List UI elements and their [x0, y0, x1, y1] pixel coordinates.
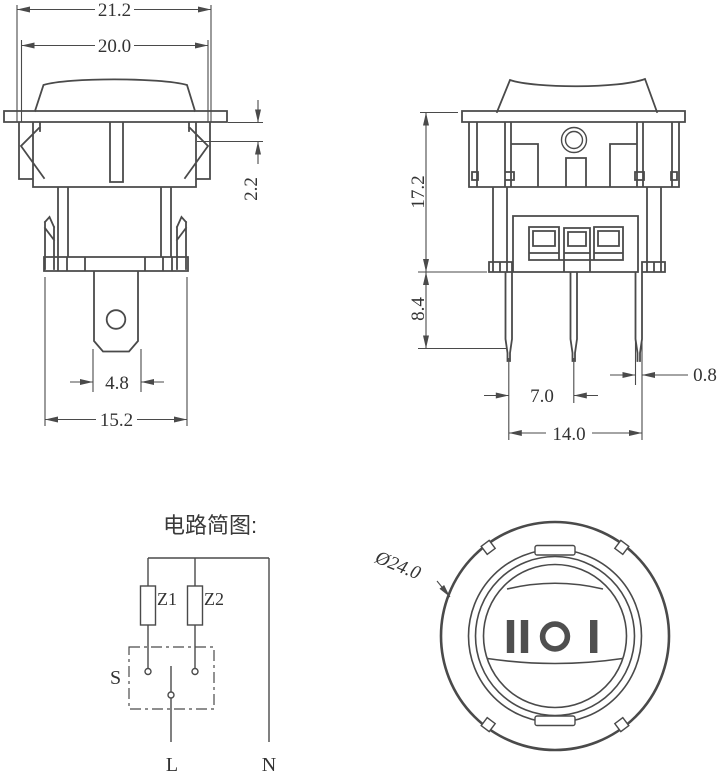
front-view-drawing: 21.2 20.0 2.2 4.8 15.2	[4, 0, 263, 431]
circuit-heading: 电路简图:	[163, 513, 257, 538]
top-alignment-tab	[535, 546, 575, 556]
marking-bar-II-2	[521, 620, 528, 653]
rim-snap-tabs	[481, 540, 629, 731]
label-n: N	[262, 754, 276, 773]
label-l: L	[166, 754, 178, 773]
bezel-ring-1	[469, 550, 642, 723]
dim-body-height: 17.2	[408, 175, 429, 208]
dim-width-inner: 20.0	[98, 36, 131, 57]
technical-drawing-page: 21.2 20.0 2.2 4.8 15.2 17.2 8.4 0.	[0, 0, 720, 773]
snap-tab-top-right	[615, 540, 629, 554]
dim-pin-pitch: 7.0	[530, 386, 554, 407]
resistor-z2	[188, 586, 203, 625]
circuit-wires	[148, 558, 269, 742]
contact-right	[192, 669, 198, 675]
dim-face-diameter: Ø24.0	[371, 547, 424, 585]
terminal-hole	[107, 310, 126, 329]
bezel-ring-3	[484, 565, 627, 708]
bottom-alignment-tab	[535, 716, 575, 726]
dim-terminal-width: 4.8	[105, 373, 129, 394]
side-view-drawing: 17.2 8.4 0.8 7.0 14.0	[408, 79, 717, 445]
snap-tab-top-left	[481, 540, 495, 554]
label-z1: Z1	[157, 589, 177, 609]
snap-tab-bottom-left	[481, 718, 495, 732]
dim-panel-thickness: 2.2	[241, 177, 262, 201]
pivot-inner-circle	[566, 132, 583, 149]
label-z2: Z2	[204, 589, 224, 609]
circuit-diagram: 电路简图: Z1 Z2 S L N	[110, 513, 276, 773]
side-view-outline	[462, 79, 685, 361]
marking-bar-I	[590, 620, 597, 653]
rocker-switch-drawing: 21.2 20.0 2.2 4.8 15.2 17.2 8.4 0.	[0, 0, 720, 773]
dim-width-top: 21.2	[98, 0, 131, 21]
snap-tab-bottom-right	[615, 718, 629, 732]
marking-bar-II-1	[507, 620, 514, 653]
rocker-bottom-edge-arc	[488, 659, 623, 664]
contact-left	[145, 669, 151, 675]
contact-common	[168, 692, 174, 698]
face-view-drawing: Ø24.0	[371, 522, 669, 750]
dim-body-width: 15.2	[100, 410, 133, 431]
resistor-z1	[141, 586, 156, 625]
marking-circle-O	[543, 624, 568, 649]
dim-pin-length: 8.4	[408, 297, 429, 321]
bezel-ring-2	[476, 557, 635, 716]
dim-pin-span: 14.0	[552, 424, 585, 445]
diameter-leader-arrow	[437, 581, 450, 597]
label-s: S	[110, 667, 121, 689]
dim-pin-thickness: 0.8	[693, 365, 717, 386]
front-extension-lines	[17, 5, 263, 426]
rocker-top-edge-arc	[507, 583, 603, 589]
switch-position-markings	[507, 620, 598, 653]
